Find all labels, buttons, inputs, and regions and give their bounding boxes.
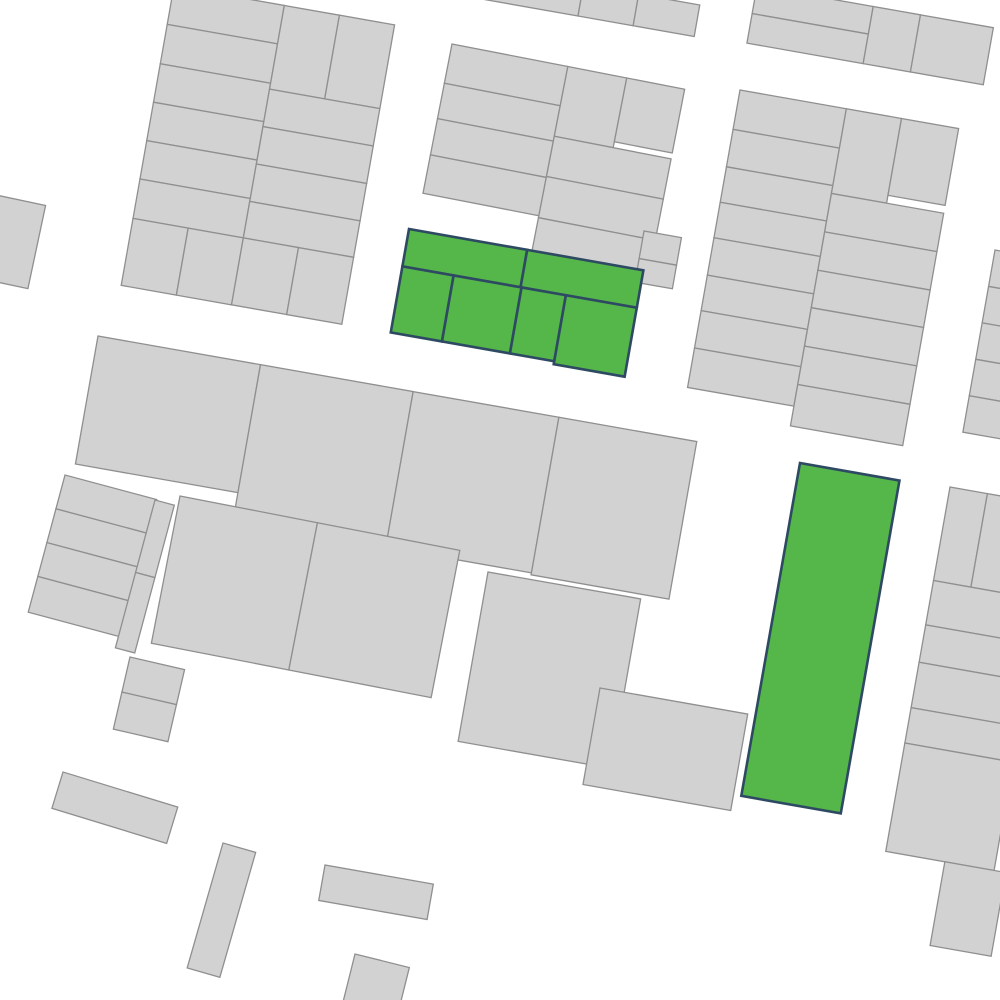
block-left-small [113,657,184,742]
parcel[interactable] [187,843,256,977]
parcel[interactable] [888,118,959,205]
block-right-sliver [963,250,1000,444]
parcel[interactable] [963,396,1000,445]
parcel-south-3 [319,865,434,920]
parcel[interactable] [289,523,460,698]
parcel[interactable] [75,336,260,493]
parcel-south-1 [52,772,178,843]
block-top-left [121,0,394,324]
parcel[interactable] [886,743,1000,870]
parcel-south-2 [187,843,256,977]
parcel[interactable] [531,417,697,599]
parcel[interactable] [583,688,748,811]
block-right-strips [871,487,1000,956]
selected-parcel[interactable] [741,463,899,813]
parcel-south-4 [340,954,409,1000]
parcel[interactable] [633,0,700,37]
block-top-right-upper [747,0,993,85]
parcel[interactable] [930,862,1000,956]
parcel[interactable] [319,865,434,920]
selected-tall [741,463,899,813]
parcel[interactable] [0,192,46,289]
parcel-west-edge [0,192,46,289]
block-center-south-east [583,688,748,811]
parcel[interactable] [52,772,178,843]
block-top-edge [484,0,699,37]
parcel[interactable] [614,78,684,153]
map-view [0,0,1000,1000]
selected-parcel[interactable] [554,295,637,376]
parcel[interactable] [484,0,583,16]
parcel[interactable] [578,0,639,26]
parcel[interactable] [340,954,409,1000]
parcel[interactable] [287,248,354,325]
map-canvas[interactable] [0,0,1000,1000]
parcel[interactable] [910,15,993,85]
block-top-right [684,90,959,446]
parcel[interactable] [151,496,317,670]
selected-parcel[interactable] [442,275,522,353]
